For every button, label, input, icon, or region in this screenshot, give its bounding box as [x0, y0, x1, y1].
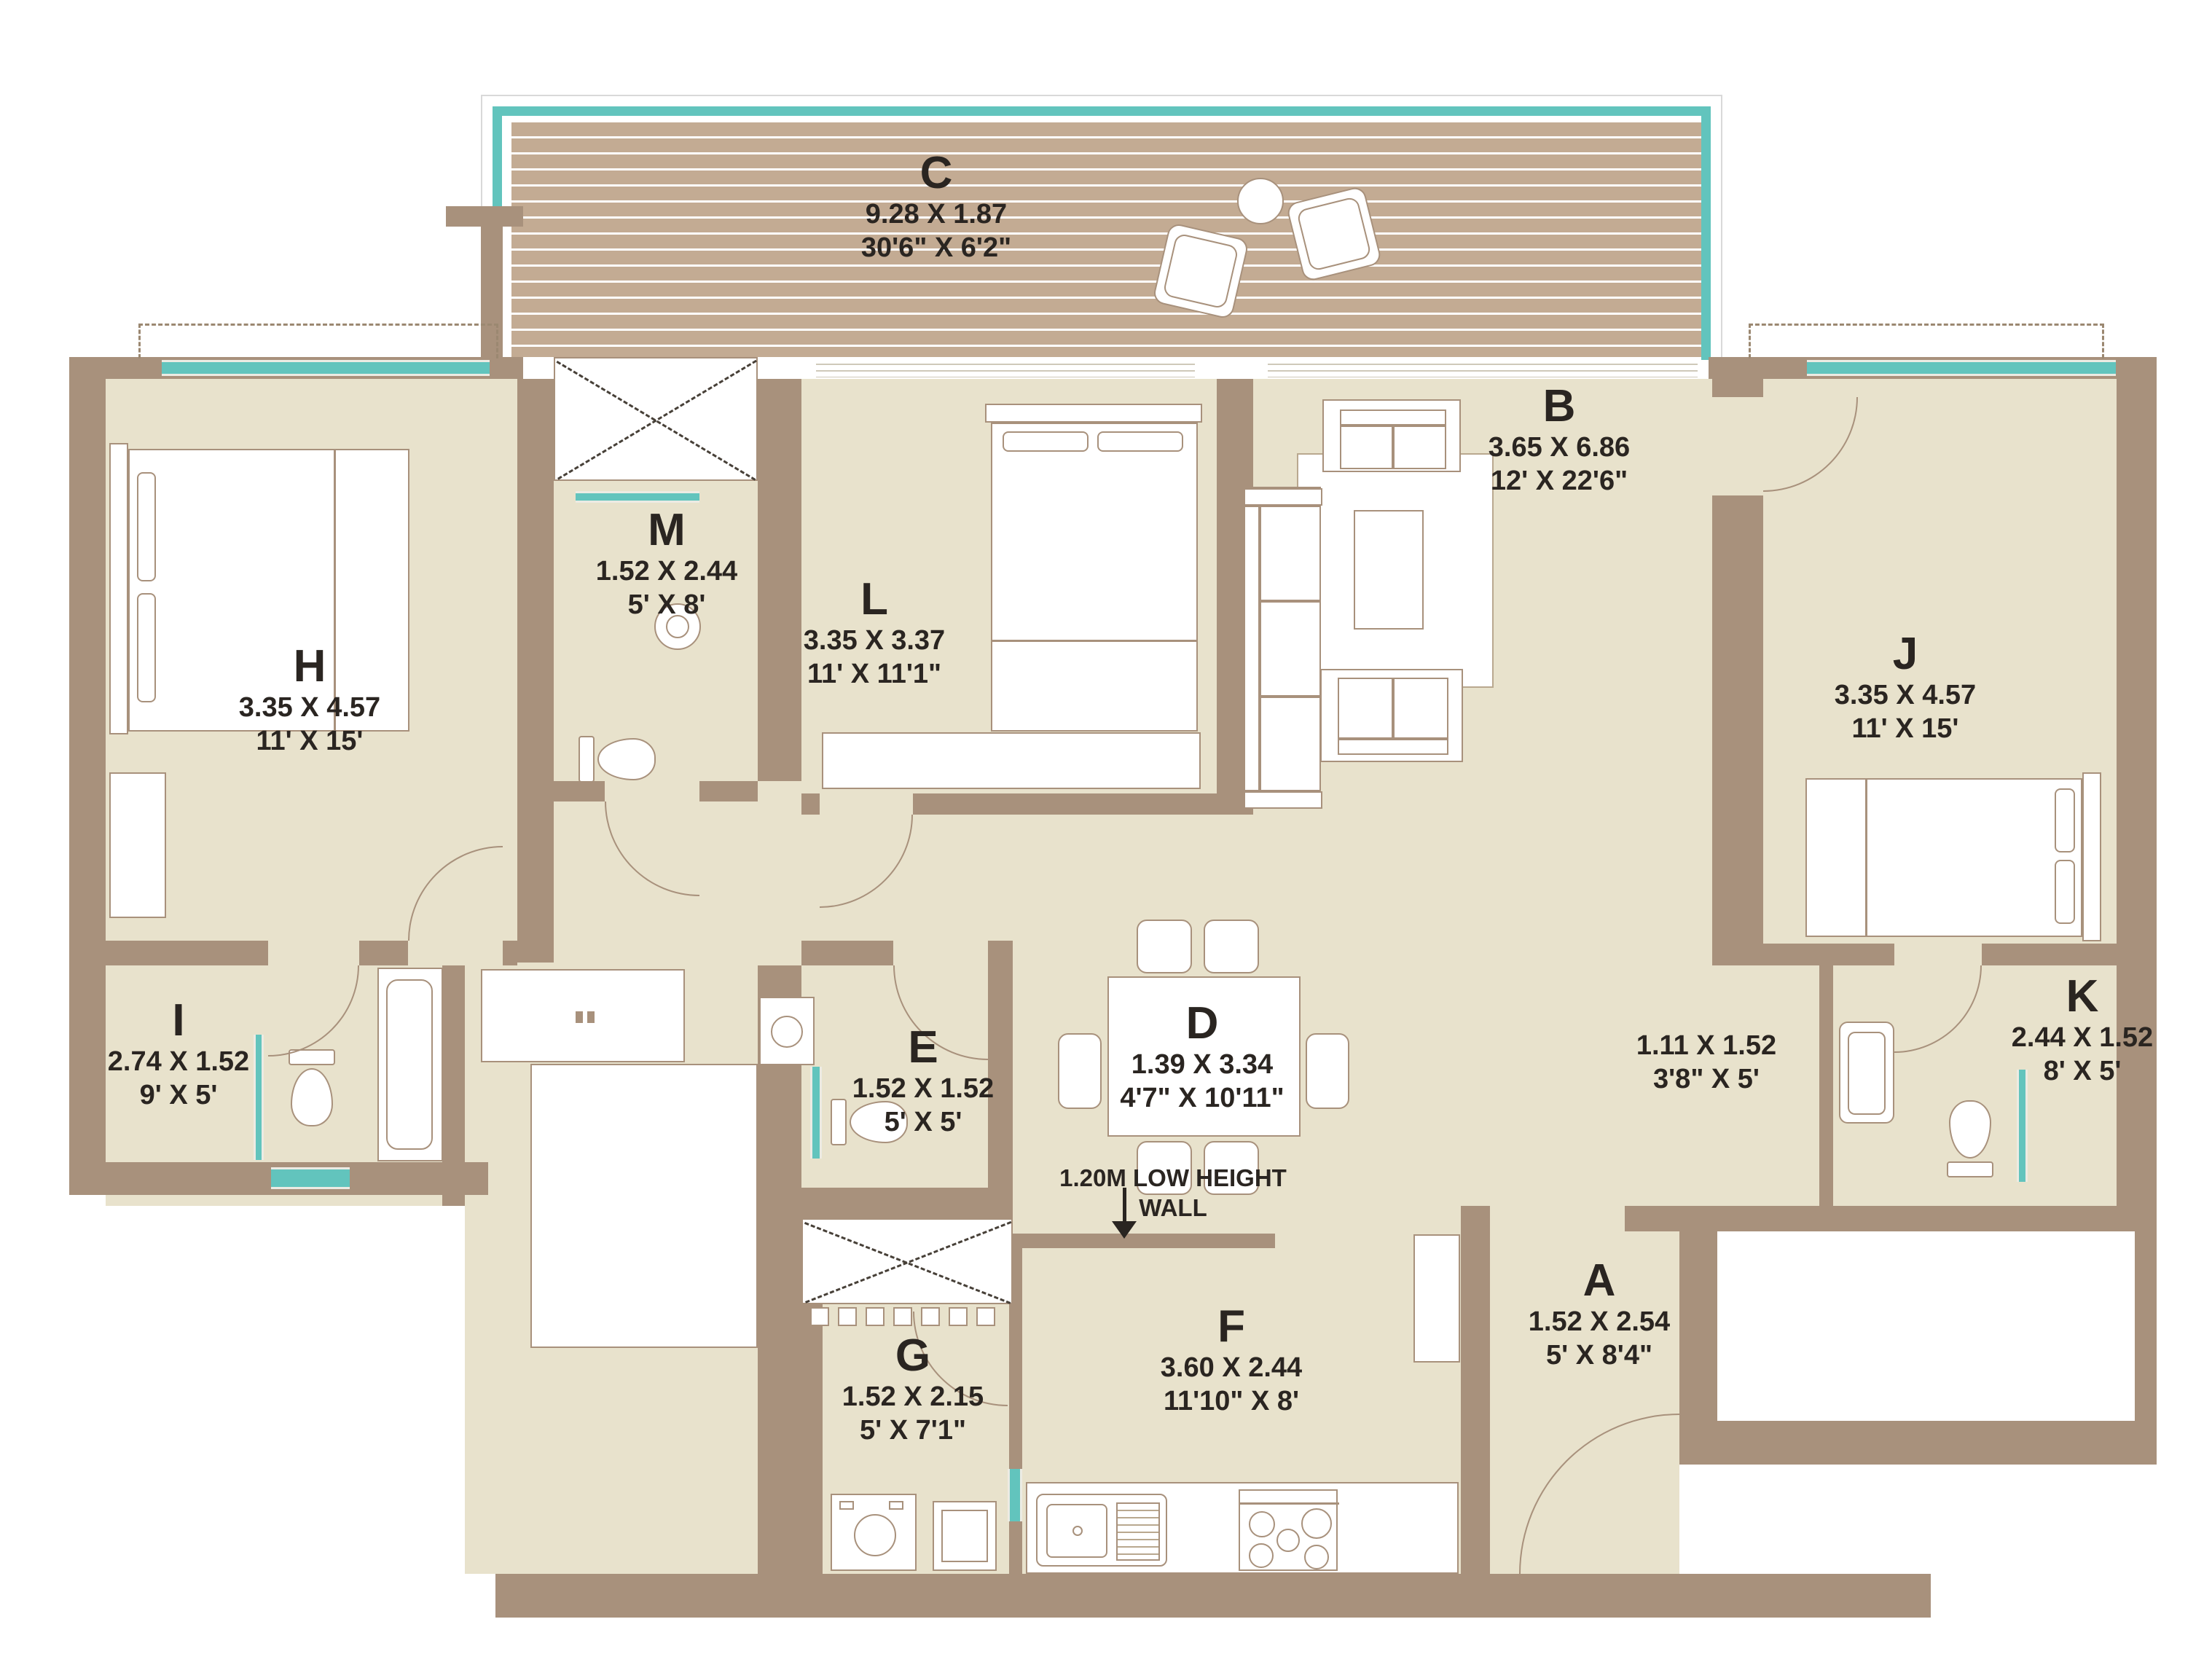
door-opening-i: [268, 941, 359, 965]
window-g: [1008, 1469, 1022, 1521]
bed-h-headboard: [109, 443, 128, 734]
wardrobe-corridor: [481, 969, 685, 1062]
utility-unit: [933, 1501, 997, 1571]
bed-l-mattress: [991, 423, 1198, 732]
kitchen-sink: [1036, 1494, 1167, 1567]
stove-burner: [1249, 1543, 1274, 1568]
wall-i-right: [442, 965, 465, 1206]
room-letter: C: [791, 149, 1082, 197]
washing-machine: [831, 1494, 917, 1571]
wall-e-bottom: [801, 1188, 988, 1218]
room-dim-metric: 3.35 X 4.57: [1763, 678, 2047, 712]
room-dim-metric: 1.52 X 2.54: [1490, 1305, 1709, 1338]
room-label-bedroom-h: H 3.35 X 4.57 11' X 15': [164, 643, 455, 758]
deck-table: [1237, 178, 1284, 224]
room-letter: K: [1973, 973, 2192, 1021]
washbasin-e: [759, 997, 815, 1065]
washer-door: [854, 1514, 896, 1556]
door-opening-l: [820, 793, 913, 815]
sofa-cushion: [1340, 426, 1393, 469]
room-letter: A: [1490, 1257, 1709, 1305]
kitchen-tall-cabinet: [1413, 1234, 1460, 1363]
sofa-cushion: [1260, 601, 1321, 697]
bed-j-pillow: [2055, 860, 2075, 924]
room-dim-imperial: 11'10" X 8': [1086, 1384, 1377, 1418]
window-i-bottom: [271, 1167, 350, 1189]
room-dim-metric: 3.60 X 2.44: [1086, 1351, 1377, 1384]
wall-right: [2117, 357, 2157, 1231]
room-label-bedroom-j: J 3.35 X 4.57 11' X 15': [1763, 630, 2047, 745]
room-label-bath-k: K 2.44 X 1.52 8' X 5': [1973, 973, 2192, 1088]
toilet-i: [284, 1049, 340, 1131]
dresser-h: [109, 772, 166, 918]
stove-burner: [1276, 1529, 1300, 1552]
basin-inner: [1848, 1032, 1886, 1115]
toilet-bowl: [291, 1068, 333, 1126]
low-wall-annotation: 1.20M LOW HEIGHT WALL: [1024, 1163, 1322, 1223]
sofa-arm: [1244, 791, 1322, 809]
bed-l-headboard: [985, 404, 1202, 423]
bed-j-mattress: [1805, 778, 2082, 937]
washbasin-k: [1839, 1022, 1894, 1124]
stove-burner: [1304, 1545, 1329, 1569]
room-dim-metric: 1.52 X 1.52: [814, 1072, 1032, 1105]
room-dim-imperial: 9' X 5': [69, 1078, 288, 1112]
room-letter: J: [1763, 630, 2047, 678]
grille-slot: [810, 1307, 829, 1326]
grille-slot: [838, 1307, 857, 1326]
wardrobe-handle: [576, 1011, 583, 1023]
chair-inner: [1162, 232, 1239, 310]
sofa-back: [1244, 506, 1260, 791]
room-label-living-b: B 3.65 X 6.86 12' X 22'6": [1413, 383, 1705, 498]
low-wall-annotation-line2: WALL: [1024, 1193, 1322, 1223]
room-letter: E: [814, 1024, 1032, 1072]
sofa-three-seater-left: [1242, 487, 1321, 807]
wall-step-h: [1717, 1421, 2157, 1465]
wall-passage-k-bottom: [1625, 1206, 2157, 1231]
bathtub-i: [377, 968, 443, 1161]
room-label-foyer-a: A 1.52 X 2.54 5' X 8'4": [1490, 1257, 1709, 1372]
bed-h-pillow: [137, 593, 156, 702]
room-letter: B: [1413, 383, 1705, 431]
door-opening-k: [1894, 944, 1982, 965]
sofa-cushion: [1338, 678, 1393, 739]
wall-f-a: [1461, 1206, 1490, 1574]
balcony-projection-j: [1749, 324, 2104, 358]
room-dim-imperial: 11' X 15': [1763, 712, 2047, 745]
room-dim-imperial: 4'7" X 10'11": [1056, 1081, 1348, 1115]
annotation-arrow-head: [1112, 1221, 1137, 1239]
annotation-arrow-shaft: [1123, 1188, 1126, 1223]
void-area: [530, 1064, 758, 1348]
dining-chair: [1204, 920, 1259, 973]
toilet-bowl: [597, 738, 656, 780]
room-dim-imperial: 12' X 22'6": [1413, 464, 1705, 498]
dresser-l: [822, 732, 1201, 789]
toilet-k: [1942, 1096, 1998, 1177]
room-dim-imperial: 5' X 5': [814, 1105, 1032, 1139]
sliding-door-l: [816, 358, 1195, 377]
toilet-bowl: [1949, 1100, 1991, 1159]
room-dim-metric: 9.28 X 1.87: [791, 197, 1082, 231]
room-label-deck-c: C 9.28 X 1.87 30'6" X 6'2": [791, 149, 1082, 264]
room-letter: L: [736, 576, 1013, 624]
room-letter: I: [69, 997, 288, 1045]
room-label-dining-d: D 1.39 X 3.34 4'7" X 10'11": [1056, 1000, 1348, 1115]
wall-step-v: [2135, 1231, 2157, 1465]
balcony-projection-h: [138, 324, 498, 358]
stove-burner: [1249, 1511, 1275, 1537]
duct-shaft-top: [554, 357, 758, 481]
sliding-door-b: [1268, 358, 1698, 377]
room-letter: D: [1056, 1000, 1348, 1048]
room-dim-metric: 1.39 X 3.34: [1056, 1048, 1348, 1081]
door-opening-h: [408, 941, 503, 965]
bed-j-fold-line: [1865, 778, 1867, 937]
sink-drainboard: [1116, 1502, 1160, 1561]
low-wall-annotation-line1: 1.20M LOW HEIGHT: [1024, 1163, 1322, 1193]
room-dim-imperial: 8' X 5': [1973, 1054, 2192, 1088]
room-label-passage: 1.11 X 1.52 3'8" X 5': [1597, 1029, 1816, 1096]
sink-tap: [1072, 1526, 1083, 1536]
wall-passage-k-divider: [1819, 965, 1833, 1206]
window-m: [576, 491, 699, 503]
floor-plan: C 9.28 X 1.87 30'6" X 6'2" H 3.35 X 4.57…: [0, 0, 2212, 1662]
bed-h-pillow: [137, 472, 156, 581]
room-dim-imperial: 5' X 8'4": [1490, 1338, 1709, 1372]
sofa-two-seater-bottom: [1320, 669, 1463, 762]
room-dim-metric: 3.35 X 3.37: [736, 624, 1013, 657]
wardrobe-handle: [587, 1011, 595, 1023]
sofa-cushion: [1260, 697, 1321, 791]
window-j: [1807, 360, 2116, 376]
utility-unit-inner: [941, 1510, 988, 1562]
bed-j-headboard: [2082, 772, 2101, 941]
tub-inner: [386, 979, 433, 1150]
room-dim-metric: 1.11 X 1.52: [1597, 1029, 1816, 1062]
room-dim-metric: 2.74 X 1.52: [69, 1045, 288, 1078]
chair-inner: [1296, 196, 1372, 272]
sofa-cushion: [1393, 678, 1448, 739]
room-dim-metric: 1.52 X 2.15: [804, 1380, 1022, 1414]
room-dim-imperial: 11' X 15': [164, 724, 455, 758]
grille-slot: [866, 1307, 885, 1326]
room-dim-imperial: 5' X 7'1": [804, 1414, 1022, 1447]
room-letter: F: [1086, 1303, 1377, 1351]
deck-floor: [511, 122, 1701, 357]
grille-slot: [893, 1307, 912, 1326]
kitchen-stove: [1239, 1489, 1338, 1571]
bed-l-pillow: [1097, 431, 1183, 452]
room-dim-imperial: 30'6" X 6'2": [791, 231, 1082, 264]
bed-j-pillow: [2055, 788, 2075, 852]
bed-l-fold-line: [991, 640, 1198, 642]
wall-e-top: [801, 941, 893, 965]
room-label-bath-e: E 1.52 X 1.52 5' X 5': [814, 1024, 1032, 1139]
stove-strip: [1240, 1502, 1339, 1505]
basin-inner: [771, 1016, 803, 1048]
stove-burner: [1301, 1508, 1332, 1539]
room-label-kitchen-f: F 3.60 X 2.44 11'10" X 8': [1086, 1303, 1377, 1418]
window-h: [162, 360, 490, 376]
room-letter: H: [164, 643, 455, 691]
bed-l-pillow: [1003, 431, 1089, 452]
room-label-utility-g: G 1.52 X 2.15 5' X 7'1": [804, 1332, 1022, 1447]
room-dim-imperial: 3'8" X 5': [1597, 1062, 1816, 1096]
door-opening-j: [1712, 397, 1763, 495]
toilet-tank: [1947, 1161, 1993, 1177]
room-dim-metric: 3.35 X 4.57: [164, 691, 455, 724]
room-dim-metric: 3.65 X 6.86: [1413, 431, 1705, 464]
sofa-arm: [1244, 488, 1322, 506]
room-dim-imperial: 11' X 11'1": [736, 657, 1013, 691]
wall-bottom: [495, 1574, 1931, 1618]
room-dim-metric: 2.44 X 1.52: [1973, 1021, 2192, 1054]
room-label-bedroom-l: L 3.35 X 3.37 11' X 11'1": [736, 576, 1013, 691]
wall-h-m: [517, 379, 554, 963]
washer-knob: [839, 1501, 854, 1510]
room-letter: M: [557, 506, 776, 554]
dining-chair: [1137, 920, 1192, 973]
sofa-cushion: [1260, 506, 1321, 601]
duct-shaft-lower: [801, 1218, 1013, 1304]
room-label-bath-i: I 2.74 X 1.52 9' X 5': [69, 997, 288, 1112]
room-letter: G: [804, 1332, 1022, 1380]
toilet-tank: [579, 736, 595, 783]
coffee-table: [1354, 510, 1424, 630]
toilet-m: [579, 732, 660, 787]
washer-knob: [889, 1501, 903, 1510]
sofa-back: [1338, 739, 1448, 755]
